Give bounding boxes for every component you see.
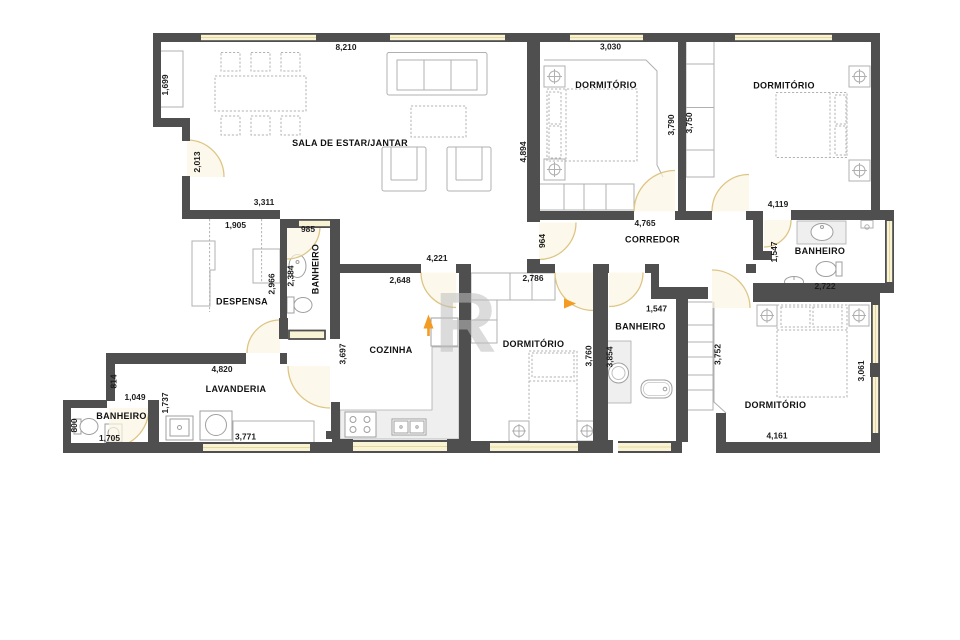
svg-text:DORMITÓRIO: DORMITÓRIO — [745, 399, 807, 410]
svg-text:2,722: 2,722 — [815, 281, 836, 291]
svg-text:DESPENSA: DESPENSA — [216, 297, 268, 307]
svg-text:1,547: 1,547 — [646, 304, 667, 314]
svg-text:985: 985 — [301, 224, 315, 234]
svg-text:R: R — [435, 276, 496, 371]
svg-text:3,311: 3,311 — [254, 197, 275, 207]
svg-text:BANHEIRO: BANHEIRO — [615, 322, 665, 332]
svg-text:1,699: 1,699 — [160, 74, 170, 95]
svg-text:1,547: 1,547 — [769, 241, 779, 262]
svg-text:1,905: 1,905 — [225, 220, 246, 230]
svg-text:DORMITÓRIO: DORMITÓRIO — [503, 338, 565, 349]
svg-text:3,750: 3,750 — [684, 112, 694, 133]
svg-text:BANHEIRO: BANHEIRO — [795, 246, 845, 256]
svg-text:2,384: 2,384 — [286, 265, 296, 286]
svg-text:3,771: 3,771 — [235, 432, 256, 442]
svg-text:DORMITÓRIO: DORMITÓRIO — [753, 80, 815, 91]
svg-text:3,030: 3,030 — [600, 42, 621, 52]
svg-text:4,221: 4,221 — [427, 253, 448, 263]
svg-text:2,966: 2,966 — [267, 273, 277, 294]
svg-text:BANHEIRO: BANHEIRO — [311, 244, 321, 294]
svg-text:4,820: 4,820 — [212, 364, 233, 374]
svg-text:4,119: 4,119 — [768, 199, 789, 209]
svg-text:964: 964 — [537, 234, 547, 248]
svg-text:SALA DE ESTAR/JANTAR: SALA DE ESTAR/JANTAR — [292, 138, 408, 148]
svg-text:3,760: 3,760 — [584, 345, 594, 366]
svg-text:CORREDOR: CORREDOR — [625, 235, 680, 245]
svg-text:3,752: 3,752 — [713, 344, 723, 365]
svg-text:3,697: 3,697 — [338, 343, 348, 364]
svg-text:COZINHA: COZINHA — [369, 345, 412, 355]
svg-text:3,790: 3,790 — [666, 114, 676, 135]
svg-text:4,894: 4,894 — [518, 141, 528, 162]
svg-text:3,854: 3,854 — [605, 346, 615, 367]
svg-text:BANHEIRO: BANHEIRO — [96, 411, 146, 421]
svg-text:DORMITÓRIO: DORMITÓRIO — [575, 79, 637, 90]
svg-text:LAVANDERIA: LAVANDERIA — [206, 384, 267, 394]
svg-text:814: 814 — [109, 374, 119, 388]
svg-text:3,061: 3,061 — [856, 360, 866, 381]
svg-text:1,737: 1,737 — [160, 392, 170, 413]
svg-text:1,049: 1,049 — [125, 392, 146, 402]
svg-text:2,013: 2,013 — [192, 151, 202, 172]
svg-text:1,705: 1,705 — [99, 433, 120, 443]
svg-text:800: 800 — [69, 418, 79, 432]
svg-text:2,648: 2,648 — [390, 275, 411, 285]
svg-text:8,210: 8,210 — [336, 42, 357, 52]
svg-text:4,161: 4,161 — [767, 431, 788, 441]
svg-text:2,786: 2,786 — [523, 273, 544, 283]
svg-text:4,765: 4,765 — [635, 218, 656, 228]
